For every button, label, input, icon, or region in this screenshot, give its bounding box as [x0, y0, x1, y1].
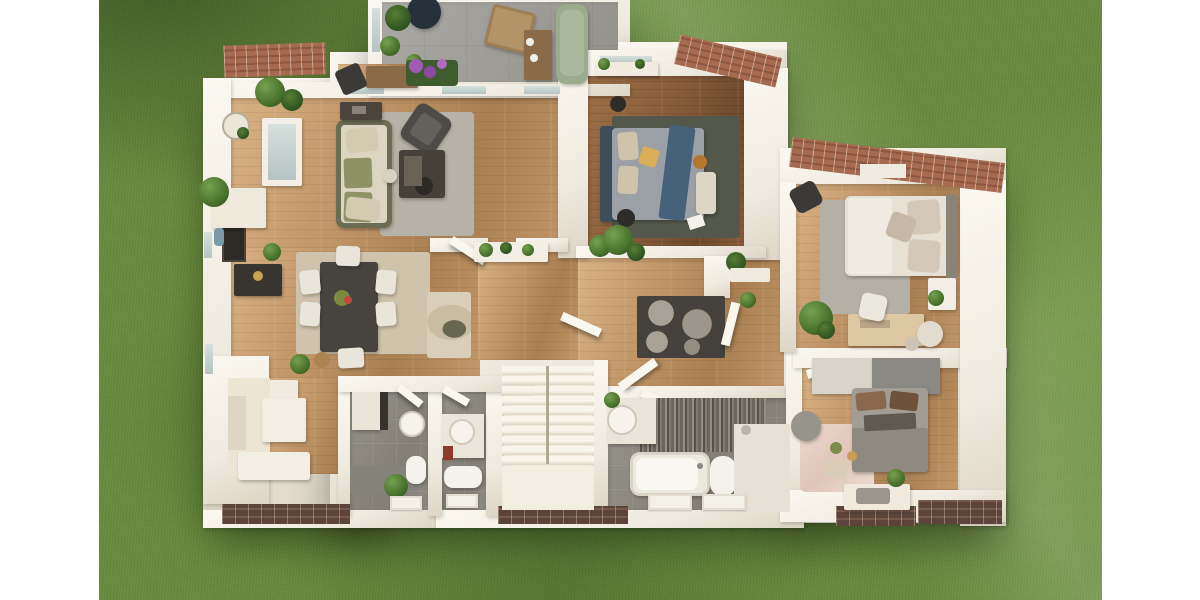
dining-chair — [299, 269, 321, 295]
shower-column — [380, 392, 388, 430]
potted-plant — [522, 244, 534, 256]
sofa-pillow — [345, 196, 381, 221]
bath-mat — [446, 494, 478, 508]
bed1-bench — [696, 172, 716, 214]
desk-items — [860, 320, 890, 328]
bath-mat — [702, 494, 746, 510]
toilet — [444, 466, 482, 488]
pouf — [917, 321, 943, 347]
potted-plant — [817, 321, 835, 339]
decor-stone — [905, 337, 919, 351]
cabinet-glass — [268, 124, 296, 180]
wall-bathB-right — [486, 386, 502, 516]
purple-flowers — [437, 59, 447, 69]
bed2-headboard — [946, 194, 958, 278]
wall-bathA-left — [338, 386, 350, 516]
kids-throw — [864, 413, 917, 432]
wall-artwork — [222, 226, 246, 262]
potted-plant — [199, 177, 229, 207]
potted-plant — [887, 469, 905, 487]
potted-plant — [500, 242, 512, 254]
house-scene — [0, 0, 1200, 600]
dining-chair — [336, 246, 361, 267]
wall-outer-right — [960, 180, 1006, 526]
dining-chair — [299, 301, 321, 326]
shower-head — [741, 425, 751, 435]
tub-faucet — [697, 463, 703, 469]
floor-corridor — [478, 248, 578, 360]
purple-flowers — [409, 59, 423, 73]
potted-plant — [928, 290, 944, 306]
bath-mat — [390, 496, 422, 510]
potted-plant — [479, 243, 493, 257]
window-terrace — [372, 8, 380, 52]
round-sink — [607, 405, 637, 435]
potted-plant — [740, 292, 756, 308]
bench-pad — [856, 488, 890, 504]
media-panel — [404, 156, 422, 186]
bed2-pillow — [907, 239, 941, 273]
shower-tray — [352, 392, 380, 430]
kids-pillow — [889, 391, 919, 412]
table-decor — [352, 106, 366, 114]
bath-mat — [648, 494, 692, 510]
terrace-plant — [380, 36, 400, 56]
cup — [526, 38, 534, 46]
rug-hall-circles — [637, 296, 725, 358]
wicker-basket — [693, 155, 707, 169]
round-sink — [399, 411, 425, 437]
kids-pillow — [855, 391, 886, 412]
stair-landing — [502, 466, 594, 510]
wall-bedroom2-left — [780, 182, 796, 352]
floor-lamp — [383, 169, 397, 183]
niche-shelf — [860, 164, 906, 178]
lounger-pad — [560, 10, 584, 76]
purple-flowers — [424, 66, 436, 78]
table-flowers-red — [344, 296, 352, 304]
round-sink — [449, 419, 475, 445]
cup — [530, 54, 538, 62]
sofa-pillow — [345, 126, 379, 153]
wall-bathAB — [428, 386, 442, 516]
terrace-plant — [385, 5, 411, 31]
kids-pouf — [791, 411, 821, 441]
brick-bottom-1 — [222, 504, 350, 524]
potted-plant — [384, 474, 408, 498]
bed1-pillow — [617, 131, 639, 160]
bathtub-inner — [636, 458, 698, 490]
potted-plant — [635, 59, 645, 69]
stair-rail — [546, 366, 549, 464]
toilet — [406, 456, 426, 484]
brick-roof-topleft — [223, 42, 326, 78]
sofa-cushion — [343, 158, 372, 189]
dining-chair — [375, 269, 397, 295]
window-left-2 — [205, 344, 213, 374]
desk-chair — [858, 292, 889, 323]
basket — [314, 352, 330, 368]
potted-plant — [627, 243, 645, 261]
bed2-blanket — [848, 198, 892, 274]
potted-plant — [604, 392, 620, 408]
wall-stairs-right — [594, 360, 608, 512]
toilet — [710, 456, 736, 496]
potted-plant — [598, 58, 610, 70]
potted-plant — [281, 89, 303, 111]
dining-chair — [375, 301, 397, 326]
dining-chair — [337, 347, 364, 368]
brick-bottom-4 — [918, 500, 1002, 524]
red-towel — [443, 446, 453, 460]
window-living-3 — [524, 86, 560, 94]
window-left-1 — [204, 232, 212, 258]
clock-leaf-decor — [237, 127, 249, 139]
textured-art — [228, 396, 246, 450]
sideboard-decor — [253, 271, 263, 281]
bed1-pillow — [617, 165, 638, 194]
window-living-2 — [442, 86, 486, 94]
entry-bench — [238, 452, 310, 480]
potted-plant — [263, 243, 281, 261]
dining-table — [320, 262, 378, 352]
floor-plan-render — [0, 0, 1200, 600]
play-tent — [823, 458, 849, 479]
kids-bed-blanket — [852, 428, 928, 472]
potted-plant — [290, 354, 310, 374]
entry-cabinet — [262, 398, 306, 442]
hall-shelf — [730, 268, 770, 282]
toy — [847, 451, 857, 461]
toy — [830, 442, 842, 454]
side-stool — [610, 96, 626, 112]
blue-vase — [214, 228, 224, 246]
rug-hall-abstract — [427, 292, 471, 358]
